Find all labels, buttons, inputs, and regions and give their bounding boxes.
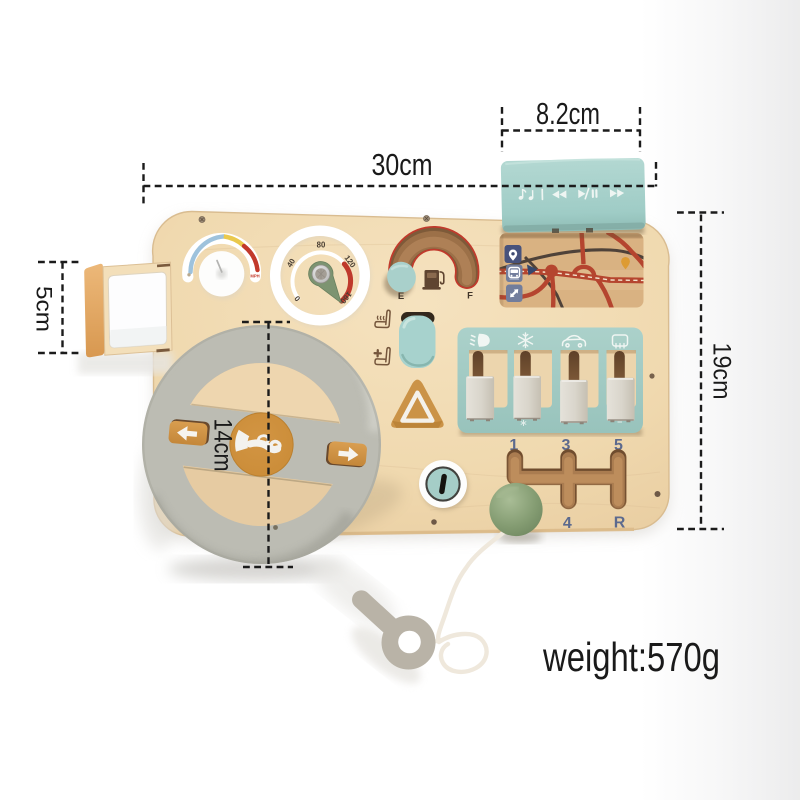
svg-text:4: 4 — [563, 515, 572, 532]
svg-text:weight:570g: weight:570g — [542, 634, 720, 680]
svg-text:8.2cm: 8.2cm — [536, 96, 600, 131]
svg-text:F: F — [467, 291, 473, 302]
svg-text:14cm: 14cm — [209, 419, 237, 472]
svg-text:MPH: MPH — [250, 274, 259, 279]
svg-text:5cm: 5cm — [32, 286, 57, 332]
svg-text:R: R — [614, 515, 626, 532]
svg-text:80: 80 — [317, 241, 326, 250]
svg-text:19cm: 19cm — [708, 343, 736, 400]
svg-text:30cm: 30cm — [372, 147, 433, 182]
